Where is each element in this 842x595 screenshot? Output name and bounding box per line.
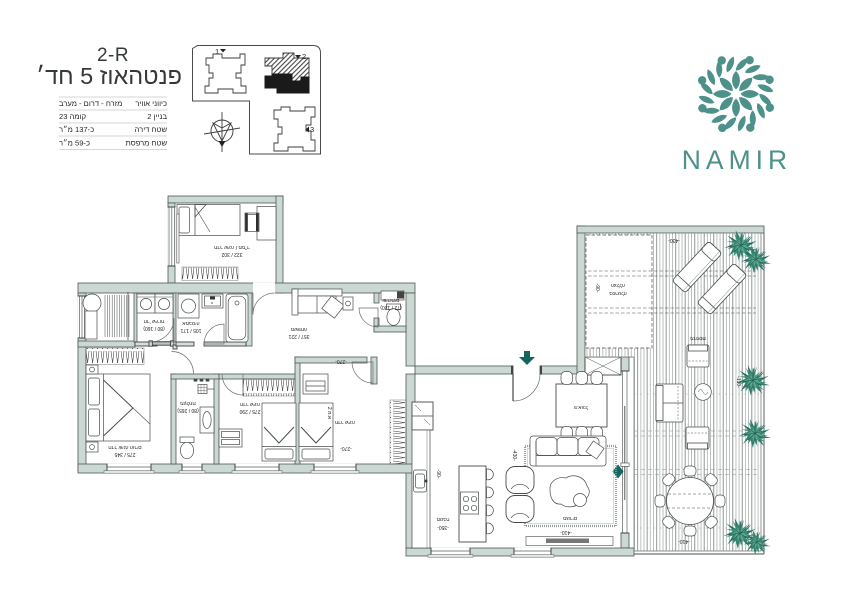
svg-text:מגורים: מגורים: [562, 515, 577, 521]
svg-text:105 / 171: 105 / 171: [180, 327, 201, 333]
svg-text:322 / 302: 322 / 302: [221, 251, 242, 257]
svg-text:חדר שינה הורים: חדר שינה הורים: [108, 444, 141, 450]
svg-text:-90-: -90-: [594, 284, 600, 293]
svg-text:קומה 23: קומה 23: [59, 112, 87, 121]
svg-text:-430-: -430-: [511, 449, 517, 461]
svg-text:שטח דירה: שטח דירה: [135, 125, 168, 134]
svg-text:2: 2: [302, 52, 306, 61]
svg-text:-270-: -270-: [340, 445, 352, 451]
svg-text:שירותים: שירותים: [382, 297, 399, 303]
svg-text:כיווני אוויר: כיווני אוויר: [135, 99, 167, 108]
svg-text:1: 1: [215, 47, 219, 56]
svg-text:357 / 221: 357 / 221: [288, 333, 309, 339]
svg-text:275 / 345: 275 / 345: [114, 451, 135, 457]
svg-text:משפחה: משפחה: [290, 326, 307, 332]
svg-text:חד' שירות: חד' שירות: [144, 318, 165, 324]
svg-text:חדר שינה: חדר שינה: [240, 401, 260, 407]
svg-text:מזרח - דרום - מערב: מזרח - דרום - מערב: [59, 99, 122, 108]
svg-text:בפרגולה: בפרגולה: [609, 290, 627, 297]
svg-text:(72 / 120): (72 / 120): [380, 304, 402, 310]
svg-text:NAMIR: NAMIR: [682, 145, 792, 175]
svg-text:פ.אוכל: פ.אוכל: [574, 404, 588, 411]
svg-text:-430-: -430-: [668, 237, 680, 243]
svg-text:בניין 2: בניין 2: [147, 112, 167, 121]
svg-text:כ-59 מ״ר: כ-59 מ״ר: [59, 139, 90, 148]
svg-text:מטבח: מטבח: [436, 516, 450, 522]
svg-text:מרפסת: מרפסת: [690, 335, 706, 341]
svg-text:-350-: -350-: [437, 524, 449, 530]
svg-text:-90-: -90-: [435, 470, 441, 479]
svg-text:-410-: -410-: [560, 529, 572, 535]
svg-text:חדר שינה / ממ"ד: חדר שינה / ממ"ד: [214, 244, 250, 250]
svg-text:(80 / 160): (80 / 160): [143, 325, 165, 331]
svg-text:3: 3: [310, 125, 314, 134]
svg-text:פנטהאוז 5 חד׳: פנטהאוז 5 חד׳: [36, 63, 182, 89]
svg-text:-410-: -410-: [678, 538, 690, 544]
svg-text:2 א.מ: 2 א.מ: [326, 407, 332, 420]
svg-text:חדר שינה: חדר שינה: [335, 419, 355, 425]
svg-text:הצללה: הצללה: [611, 282, 625, 289]
svg-text:-130-: -130-: [735, 376, 741, 388]
svg-text:-270-: -270-: [335, 358, 347, 364]
svg-text:כ-137 מ״ר: כ-137 מ״ר: [59, 125, 94, 134]
svg-text:(80 / 265): (80 / 265): [177, 407, 199, 413]
svg-text:שטח מרפסת: שטח מרפסת: [126, 139, 168, 148]
svg-text:אמבטיה: אמבטיה: [182, 320, 200, 326]
svg-text:275 / 290: 275 / 290: [239, 408, 260, 414]
svg-text:מקלחת: מקלחת: [180, 400, 196, 407]
